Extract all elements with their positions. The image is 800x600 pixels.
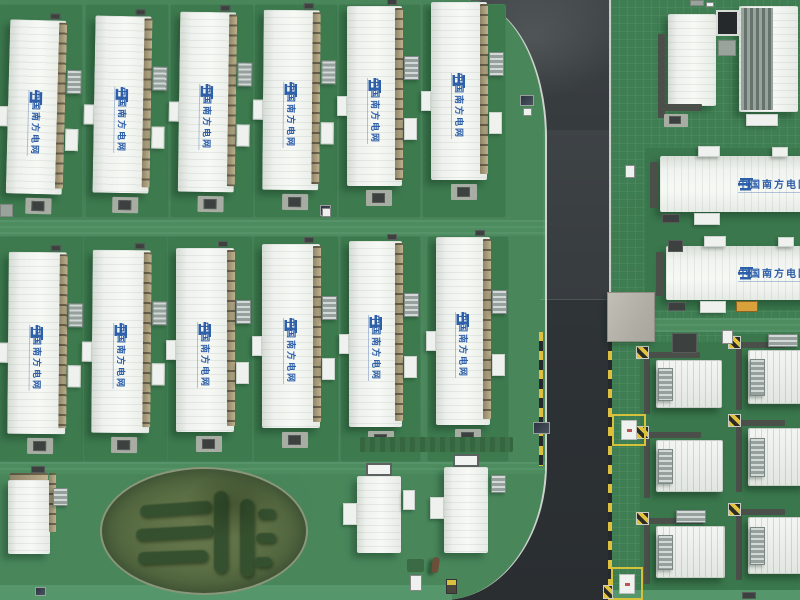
ground-unit xyxy=(288,435,301,445)
side-equipment-box xyxy=(700,301,726,313)
road-resurfaced-patch xyxy=(543,130,609,299)
building-brand-text: 中国南方电网 xyxy=(452,73,467,139)
equipment-box xyxy=(322,208,331,217)
roof-vent-unit xyxy=(221,5,231,11)
curb-hazard-dashes xyxy=(608,332,612,600)
building-brand-text: 中国南方电网 xyxy=(738,176,800,193)
solar-sensor-panel xyxy=(35,587,46,596)
storage-building: 中国南方电网 xyxy=(176,248,234,432)
building-brand-text: 中国南方电网 xyxy=(738,265,800,282)
storage-building-group: 中国南方电网 xyxy=(0,8,84,218)
container-unit-group xyxy=(636,508,731,584)
side-equipment-box xyxy=(337,96,347,116)
roof-box xyxy=(772,147,788,157)
building-brand-text: 中国南方电网 xyxy=(199,84,215,150)
hazard-marker-icon xyxy=(636,512,649,525)
hvac-unit xyxy=(491,475,506,493)
walkway-rail xyxy=(658,104,702,111)
service-pad xyxy=(197,196,223,212)
container-unit-group xyxy=(728,410,800,492)
side-equipment-box xyxy=(252,336,262,356)
equipment-cabinet xyxy=(672,333,697,353)
equipment-box xyxy=(625,165,635,178)
walkway-rail xyxy=(644,518,650,584)
hvac-unit xyxy=(750,527,765,566)
building-brand-text: 中国南方电网 xyxy=(29,325,45,391)
container-unit xyxy=(748,350,800,404)
roof-vent-unit xyxy=(304,3,314,9)
walkway-rail xyxy=(736,509,742,580)
hazard-marker-icon xyxy=(636,346,649,359)
label-mark xyxy=(627,429,632,432)
storage-building-group: 中国南方电网 xyxy=(159,0,255,216)
small-building xyxy=(357,476,401,553)
service-pad xyxy=(112,197,138,213)
building-brand-text: 中国南方电网 xyxy=(456,312,471,378)
roof-vent-unit xyxy=(475,230,485,236)
concrete-pad xyxy=(607,292,655,342)
camera-tower xyxy=(716,10,739,36)
ground-unit xyxy=(372,193,385,203)
walkway-rail xyxy=(650,162,658,208)
side-equipment-box xyxy=(84,104,94,124)
walkway-rail xyxy=(644,432,701,438)
building-brand-text: 中国南方电网 xyxy=(113,323,129,389)
roof-walkway xyxy=(483,239,491,419)
building-brand-text: 中国南方电网 xyxy=(114,87,130,153)
building-brand-text: 中国南方电网 xyxy=(27,89,44,155)
hvac-unit xyxy=(750,438,765,477)
hazard-marker-icon xyxy=(603,585,613,599)
container-unit-group xyxy=(636,422,729,498)
roof-vent-unit xyxy=(471,0,481,1)
side-equipment-box xyxy=(0,343,8,363)
ground-unit xyxy=(669,116,681,124)
storage-building: 中国南方电网 xyxy=(262,10,320,190)
roof-vent-unit xyxy=(218,241,228,247)
curb-hazard-dashes xyxy=(539,332,543,466)
side-equipment-box xyxy=(253,100,263,120)
storage-building: 中国南方电网 xyxy=(92,16,151,194)
storage-building-group: 中国南方电网 xyxy=(411,0,507,204)
utility-building xyxy=(668,14,716,106)
equipment-box xyxy=(410,575,422,591)
fire-extinguisher-cabinet xyxy=(621,420,637,440)
roof-vent-unit xyxy=(387,0,397,5)
side-equipment-box xyxy=(169,101,179,121)
side-equipment-box xyxy=(694,213,720,225)
aerial-photo-energy-storage-station: 中国南方电网中国南方电网中国南方电网中国南方电网中国南方电网中国南方电网中国南方… xyxy=(0,0,800,600)
side-equipment-box xyxy=(339,334,349,354)
service-pad xyxy=(366,190,392,206)
warning-sign xyxy=(446,579,457,594)
service-pad xyxy=(282,432,308,448)
storage-building-group: 中国南方电网 xyxy=(327,0,422,210)
cooling-fins xyxy=(741,8,773,110)
walkway-rail xyxy=(736,420,785,426)
side-equipment-box xyxy=(166,340,176,360)
container-unit xyxy=(656,360,722,408)
label-mark xyxy=(625,583,630,586)
roof-vent-unit xyxy=(304,237,314,243)
fire-equipment-box xyxy=(611,567,643,600)
roof-walkway xyxy=(58,254,68,428)
building-brand-text: 中国南方电网 xyxy=(368,315,383,381)
side-equipment-box xyxy=(492,354,505,376)
equipment-box xyxy=(706,2,714,7)
ground-unit xyxy=(31,201,44,211)
fire-extinguisher-cabinet xyxy=(619,574,635,594)
roof-walkway xyxy=(10,473,48,480)
rooftop-vent xyxy=(366,463,392,476)
ground-unit xyxy=(118,200,131,210)
storage-building: 中国南方电网 xyxy=(178,12,237,193)
container-unit-group xyxy=(728,499,800,580)
road-seam xyxy=(540,299,612,300)
rooftop-hvac xyxy=(768,334,798,347)
side-equipment-box xyxy=(426,331,436,351)
oval-garden xyxy=(100,467,308,595)
ground-unit xyxy=(457,187,470,197)
building-brand-text: 中国南方电网 xyxy=(367,78,382,144)
service-pad xyxy=(664,114,688,127)
storage-building: 中国南方电网 xyxy=(91,250,151,433)
fire-equipment-box xyxy=(612,414,646,446)
service-pad xyxy=(282,194,308,210)
equipment-cabinet xyxy=(668,240,683,252)
storage-building: 中国南方电网 xyxy=(347,6,402,186)
ground-unit xyxy=(288,197,301,207)
building-steps xyxy=(746,114,778,126)
roof-vent-unit xyxy=(387,234,397,240)
small-building xyxy=(444,467,488,553)
roof-vent-unit xyxy=(51,13,61,19)
side-equipment-box xyxy=(421,91,431,111)
side-equipment-box xyxy=(430,497,444,519)
hvac-unit xyxy=(750,359,765,396)
roof-vent-unit xyxy=(136,9,146,15)
small-building-group xyxy=(426,451,506,561)
ground-unit xyxy=(202,439,215,449)
roof-walkway xyxy=(227,250,235,426)
walkway-rail xyxy=(656,252,664,296)
roof-walkway xyxy=(311,12,321,184)
building-brand-text: 中国南方电网 xyxy=(284,318,299,384)
small-building xyxy=(8,480,50,554)
storage-building-group: 中国南方电网 xyxy=(156,236,254,456)
ground-unit xyxy=(117,440,130,450)
side-equipment-box xyxy=(489,112,502,134)
side-equipment-box xyxy=(0,106,8,126)
side-equipment-box xyxy=(343,503,357,525)
hvac-unit xyxy=(489,52,504,76)
hvac-unit xyxy=(492,290,507,314)
side-equipment-box xyxy=(82,341,92,361)
roof-box xyxy=(698,146,720,157)
small-building-group xyxy=(0,464,68,562)
service-pad xyxy=(111,437,137,453)
roof-vent-unit xyxy=(51,245,61,251)
storage-building-group-h: 中国南方电网 xyxy=(646,142,800,228)
walkway-rail xyxy=(736,420,742,492)
container-unit-group xyxy=(728,332,800,410)
walkway-rail xyxy=(736,342,742,410)
building-brand-text: 中国南方电网 xyxy=(283,82,299,148)
roof-walkway xyxy=(313,246,321,422)
cooling-building xyxy=(739,6,798,112)
storage-building-group: 中国南方电网 xyxy=(416,225,510,449)
hazard-marker-icon xyxy=(728,503,741,516)
storage-building-horizontal: 中国南方电网 xyxy=(660,156,800,212)
hvac-unit xyxy=(658,449,673,484)
roof-walkway xyxy=(142,18,153,187)
storage-building: 中国南方电网 xyxy=(349,241,402,427)
ground-unit xyxy=(662,214,680,223)
side-equipment-box xyxy=(403,490,415,510)
hedge-shadow xyxy=(102,469,310,597)
ground-unit xyxy=(668,302,686,311)
concrete-pad-small xyxy=(0,204,13,217)
service-pad xyxy=(27,438,53,454)
storage-building: 中国南方电网 xyxy=(262,244,320,428)
equipment-lid xyxy=(722,330,733,344)
roof-box xyxy=(704,236,726,247)
transformer-box xyxy=(736,301,758,312)
roof-walkway xyxy=(55,23,67,189)
roof-walkway xyxy=(395,8,403,180)
storage-building-group: 中国南方电网 xyxy=(243,0,339,214)
roof-box xyxy=(778,237,794,247)
storage-building: 中国南方电网 xyxy=(436,237,490,425)
walkway-rail xyxy=(644,352,650,414)
storage-building: 中国南方电网 xyxy=(6,19,67,194)
camera-base xyxy=(718,40,736,56)
equipment-cabinet xyxy=(742,592,756,599)
solar-sensor-panel xyxy=(533,422,550,434)
rooftop-hvac xyxy=(676,510,706,523)
service-pad xyxy=(25,198,51,215)
container-unit xyxy=(748,428,800,486)
storage-building: 中国南方电网 xyxy=(431,2,487,180)
concrete-pad-small xyxy=(690,0,704,6)
solar-sensor-panel xyxy=(520,95,534,106)
service-pad xyxy=(451,184,477,200)
hazard-marker-icon xyxy=(728,414,741,427)
storage-building-group: 中国南方电网 xyxy=(242,232,340,452)
storage-building-group: 中国南方电网 xyxy=(329,229,422,451)
storage-building-group: 中国南方电网 xyxy=(74,4,170,217)
storage-building-horizontal: 中国南方电网 xyxy=(666,246,800,300)
container-unit xyxy=(656,526,725,578)
storage-building: 中国南方电网 xyxy=(7,252,67,434)
walkway-rail xyxy=(736,509,785,515)
hvac-unit xyxy=(53,488,68,506)
roof-walkway xyxy=(227,14,237,186)
green-mat-small xyxy=(407,559,424,572)
roof-unit xyxy=(31,466,45,473)
container-unit xyxy=(748,517,800,574)
roof-walkway xyxy=(142,252,152,427)
hvac-unit xyxy=(658,535,673,570)
service-pad xyxy=(196,436,222,452)
roof-vent-unit xyxy=(135,243,145,249)
ground-unit xyxy=(203,199,216,209)
equipment-box xyxy=(523,108,532,116)
rooftop-vent xyxy=(453,454,479,467)
hvac-unit xyxy=(658,368,673,401)
green-mat xyxy=(360,437,513,452)
small-building-group xyxy=(339,460,419,561)
roof-walkway xyxy=(480,4,488,174)
container-unit xyxy=(656,440,723,492)
ground-unit xyxy=(33,441,46,451)
roof-walkway xyxy=(395,243,403,421)
building-brand-text: 中国南方电网 xyxy=(198,322,213,388)
